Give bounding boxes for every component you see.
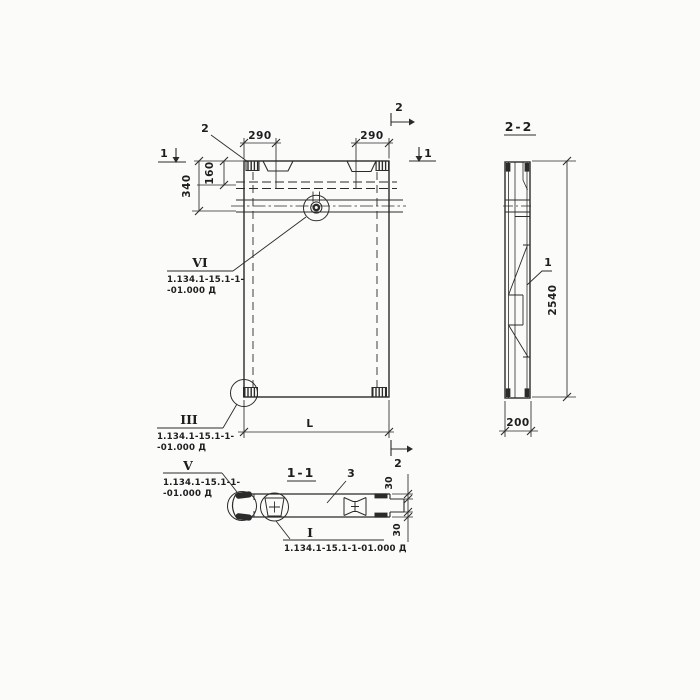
section-2-2-label: 2-2 (505, 119, 534, 134)
section-2-2-embed-plates (506, 163, 529, 397)
dim-2540-line (532, 161, 576, 397)
section-2-2 (499, 135, 576, 437)
callout-1-label: 1 (544, 256, 552, 269)
detail-vi-ref2: -01.000 Д (167, 286, 216, 296)
top-recess-right (347, 161, 376, 172)
dim-30-top-text: 30 (384, 476, 395, 490)
detail-v-ref1: 1.134.1-15.1-1- (163, 478, 241, 488)
callout-2-leader (211, 135, 248, 162)
precast-panel-drawing: 2 290 290 2 2 1 1 340 160 L VI 1.134.1-1… (0, 0, 700, 700)
detail-iii-ref2: -01.000 Д (157, 443, 206, 453)
dim-length-text: L (306, 418, 313, 430)
dim-length-line (238, 400, 394, 438)
marker-2-top-label: 2 (395, 101, 403, 114)
dim-340-line (192, 161, 244, 211)
detail-iii-num: III (180, 412, 198, 427)
dim-340-text: 340 (181, 174, 193, 197)
section-marker-1-right (409, 147, 436, 162)
hidden-lines-horizontal (236, 182, 397, 189)
marker-1-left-label: 1 (160, 147, 168, 160)
detail-vi-num: VI (191, 255, 208, 270)
detail-circle-vi (304, 195, 330, 221)
section-2-2-inner-edges (509, 162, 528, 398)
detail-vi-ref1: 1.134.1-15.1-1- (167, 275, 245, 285)
right-end-cap (375, 493, 405, 517)
callout-3-leader (327, 481, 346, 503)
detail-v-num: V (182, 458, 193, 473)
callout-1-leader (527, 271, 552, 285)
loop-seats (235, 491, 252, 521)
panel-outline (244, 161, 389, 397)
detail-i-ref: 1.134.1-15.1-1-01.000 Д (284, 544, 407, 554)
section-1-1-label: 1-1 (287, 465, 316, 480)
section-2-2-texts: 2-2 1 2540 200 (505, 119, 559, 429)
dim-2540 (532, 157, 576, 401)
detail-v-ref2: -01.000 Д (163, 489, 212, 499)
dim-length (238, 400, 394, 438)
detail-i-num: I (307, 525, 313, 540)
dim-160-text: 160 (204, 161, 216, 184)
dim-2540-text: 2540 (547, 284, 559, 315)
anchor-bottom-left (244, 388, 258, 398)
callout-2-label: 2 (201, 122, 209, 135)
keystone-insert (265, 498, 284, 516)
dim-160-line (197, 161, 236, 185)
anchor-top-right (376, 161, 389, 171)
detail-iii-ref1: 1.134.1-15.1-1- (157, 432, 235, 442)
dim-290-right-text: 290 (360, 130, 383, 142)
dim-200-text: 200 (506, 417, 529, 429)
plan-view-texts: 2 290 290 2 2 1 1 340 160 L VI 1.134.1-1… (157, 101, 432, 470)
dim-30-bottom-text: 30 (392, 523, 403, 537)
middle-insert (344, 498, 366, 516)
dim-160 (197, 157, 236, 189)
section-marker-2-top (391, 113, 415, 126)
callout-3-label: 3 (347, 467, 355, 480)
detail-i-leader (276, 521, 290, 539)
detail-iii-leader (223, 404, 237, 428)
marker-2-bottom-label: 2 (394, 457, 402, 470)
dim-290-left-text: 290 (248, 130, 271, 142)
anchor-top-left (246, 161, 259, 171)
drawing-sheet: 2 290 290 2 2 1 1 340 160 L VI 1.134.1-1… (0, 0, 700, 700)
section-marker-2-bottom (391, 440, 413, 456)
marker-1-right-label: 1 (424, 147, 432, 160)
anchor-bottom-right (372, 388, 387, 398)
top-recess-left (263, 161, 293, 171)
